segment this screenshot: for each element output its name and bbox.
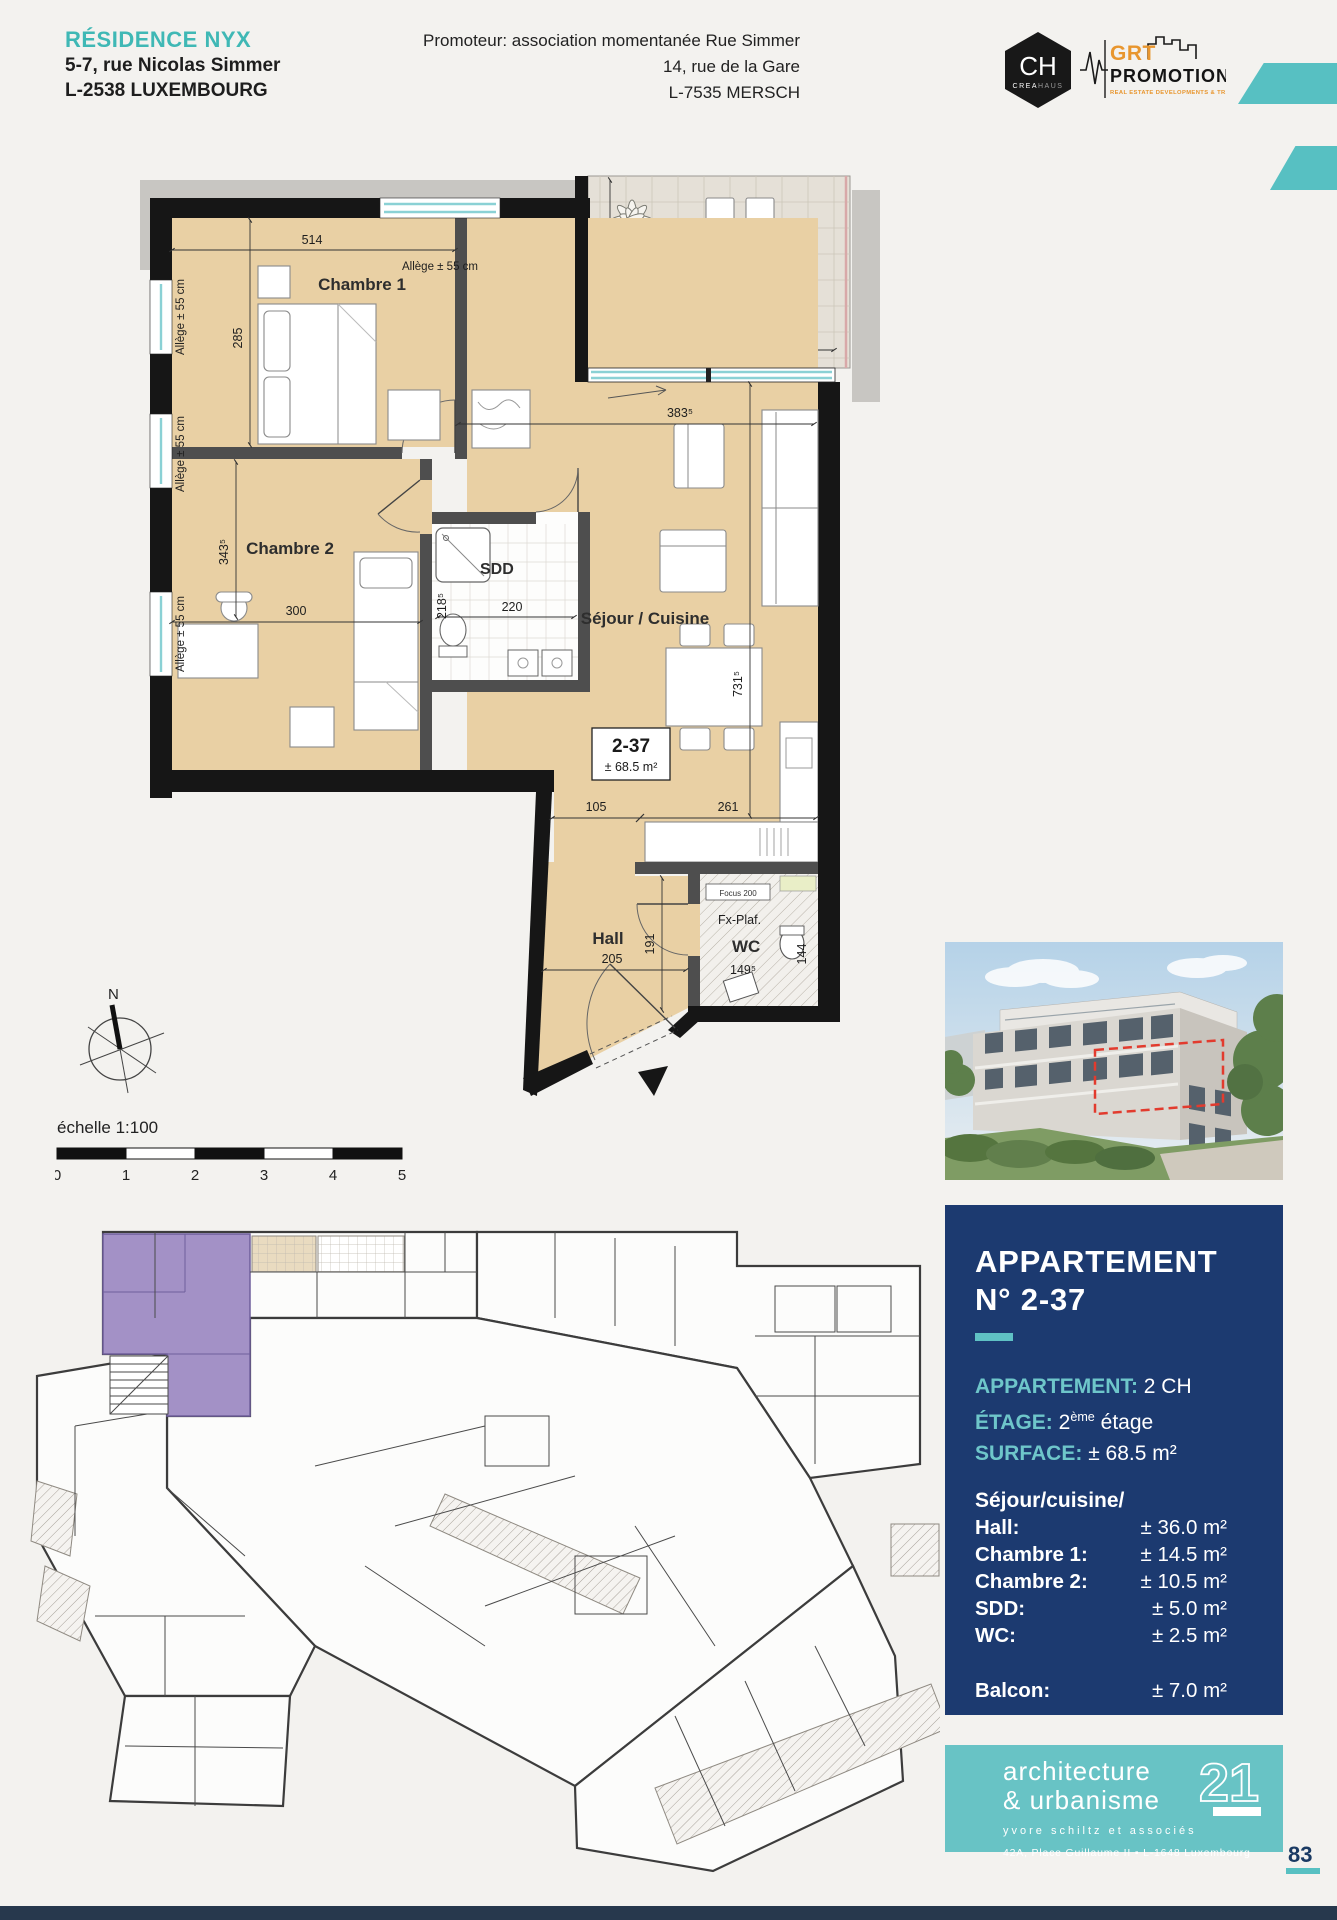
room-label-sdd: SDD [480,561,514,578]
hall-floor [532,862,688,1088]
surface-value: ± 10.5 m² [1141,1568,1227,1595]
surface-value: ± 5.0 m² [1152,1595,1227,1622]
wall-wc-bottom [688,1006,840,1022]
scale-tick-0: 0 [55,1167,61,1184]
surface-row-balcon: Balcon:± 7.0 m² [975,1677,1227,1704]
architect-address: 42A, Place Guillaume II ▪ L-1648 Luxembo… [1003,1847,1251,1859]
svg-text:CREAHAUS: CREAHAUS [1013,83,1064,90]
outer-wall-band-left [140,180,150,270]
residence-title: RÉSIDENCE NYX [65,27,280,53]
surface-value: ± 2.5 m² [1152,1622,1227,1649]
armchair [674,424,724,488]
wall-ch1-bottom [172,447,402,459]
dim-105: 105 [586,800,607,814]
residence-address-line2: L-2538 LUXEMBOURG [65,78,280,103]
dim-205: 205 [602,952,623,966]
dim-731: 731⁵ [731,671,745,697]
dim-343: 343⁵ [217,539,231,565]
left-windows [150,280,172,676]
surface-label: Balcon: [975,1677,1050,1704]
sink [508,650,538,676]
panel-title-line1: APPARTEMENT [975,1243,1217,1281]
cabinet [290,707,334,747]
spec-etage-rest: étage [1101,1411,1154,1434]
dim-218: 218⁵ [435,593,449,619]
note-allege-left3: Allège ± 55 cm [175,596,187,672]
apartment-info-panel: APPARTEMENT N° 2-37 APPARTEMENT: 2 CH ÉT… [945,1205,1283,1715]
apartment-floorplan: Balcon 197 352 SDD [140,162,880,1122]
surface-label: SDD: [975,1595,1025,1622]
creahaus-logo: CH CREAHAUS [1003,30,1073,110]
teal-decoration-top [1238,63,1337,104]
note-focus200: Focus 200 [719,889,757,898]
architect-number-text: 21 [1199,1753,1259,1813]
scale-bar: 0 1 2 3 4 5 [55,1146,407,1188]
compass-north-label: N [108,986,119,1003]
dining-table [666,648,762,726]
surface-value: ± 36.0 m² [1141,1514,1227,1541]
heartbeat-icon [1080,52,1108,84]
grt-tagline: REAL ESTATE DEVELOPMENTS & TRANSACTIONS [1110,90,1226,96]
compass-icon: N [68,985,178,1105]
dim-261: 261 [718,800,739,814]
spec-surface-label: SURFACE: [975,1442,1082,1465]
panel-title-line2: N° 2-37 [975,1281,1217,1319]
spec-appartement-label: APPARTEMENT: [975,1375,1138,1398]
spec-etage-num: 2 [1059,1411,1071,1434]
dim-220: 220 [502,600,523,614]
note-fxplaf: Fx-Plaf. [718,913,761,927]
surface-label: WC: [975,1622,1016,1649]
wall-top [150,198,590,218]
note-allege-left1: Allège ± 55 cm [175,279,187,355]
teal-decoration-bottom [1270,146,1337,190]
promoter-line1: Promoteur: association momentanée Rue Si… [390,28,800,54]
dim-285: 285 [231,328,245,349]
dining-chair [680,728,710,750]
dim-383: 383⁵ [667,406,693,420]
scale-tick-2: 2 [191,1167,199,1184]
room-label-hall: Hall [592,929,623,948]
spec-appartement-value: 2 CH [1144,1375,1192,1398]
dining-chair [724,728,754,750]
residence-address-line1: 5-7, rue Nicolas Simmer [65,53,280,78]
surface-label: Hall: [975,1514,1019,1541]
creahaus-name-part2: HAUS [1038,83,1063,90]
scale-tick-3: 3 [260,1167,268,1184]
panel-specs: APPARTEMENT: 2 CH ÉTAGE: 2ème étage SURF… [975,1371,1192,1469]
wall-balcony-left [575,176,588,382]
surface-row-wc: WC:± 2.5 m² [975,1622,1227,1649]
grt-sub: PROMOTIONS [1110,66,1226,86]
outer-wall-band-right [852,190,880,402]
surface-row-hall: Hall:± 36.0 m² [975,1514,1227,1541]
dresser [388,390,440,440]
unit-area: ± 68.5 m² [605,760,658,774]
spec-surface: SURFACE: ± 68.5 m² [975,1438,1192,1469]
wall-ch1-right [455,218,467,459]
dim-144: 144 [795,944,809,965]
grt-promotions-logo: GRT PROMOTIONS REAL ESTATE DEVELOPMENTS … [1078,32,1226,110]
surface-row-sdd: SDD:± 5.0 m² [975,1595,1227,1622]
room-label-chambre2: Chambre 2 [246,539,334,558]
surface-value: ± 14.5 m² [1141,1541,1227,1568]
scale-tick-4: 4 [329,1167,337,1184]
scale-label: échelle 1:100 [57,1118,158,1138]
scale-tick-1: 1 [122,1167,130,1184]
architect-line2: & urbanisme [1003,1785,1160,1815]
dining-chair [724,624,754,646]
armchair [660,530,726,592]
note-allege-left2: Allège ± 55 cm [175,416,187,492]
promoter-line3: L-7535 MERSCH [390,80,800,106]
scale-tick-5: 5 [398,1167,406,1184]
unit-number: 2-37 [612,736,650,757]
surface-label: Chambre 2: [975,1568,1088,1595]
dim-300: 300 [286,604,307,618]
page-bottom-strip [0,1906,1337,1920]
spec-appartement: APPARTEMENT: 2 CH [975,1371,1192,1402]
architect-bar [1213,1807,1261,1816]
project-header: RÉSIDENCE NYX 5-7, rue Nicolas Simmer L-… [65,27,280,103]
architect-number-21: 21 [1197,1751,1267,1813]
desk [178,624,258,678]
room-label-wc: WC [732,937,760,956]
brochure-page: RÉSIDENCE NYX 5-7, rue Nicolas Simmer L-… [0,0,1337,1920]
grt-name: GRT [1110,42,1156,65]
promoter-line2: 14, rue de la Gare [390,54,800,80]
architect-line1: architecture [1003,1756,1151,1786]
sink [542,650,572,676]
spec-surface-value: ± 68.5 m² [1088,1442,1177,1465]
architect-logo-box: architecture & urbanisme yvore schiltz e… [945,1745,1283,1852]
surface-row-chambre1: Chambre 1:± 14.5 m² [975,1541,1227,1568]
panel-title: APPARTEMENT N° 2-37 [975,1243,1217,1319]
outer-wall-band-top [140,180,590,198]
nightstand [258,266,290,298]
creahaus-initials: CH [1019,51,1057,81]
dim-191: 191 [643,934,657,955]
surfaces-title: Séjour/cuisine/ [975,1487,1227,1514]
wardrobe [472,390,530,448]
surface-value: ± 7.0 m² [1152,1677,1227,1704]
entry-arrow-icon [638,1066,668,1096]
spec-etage-label: ÉTAGE: [975,1411,1053,1434]
note-allege-top: Allège ± 55 cm [402,261,478,273]
dim-149: 149⁵ [730,963,756,977]
room-label-chambre1: Chambre 1 [318,275,406,294]
spec-etage: ÉTAGE: 2ème étage [975,1402,1192,1438]
promoter-block: Promoteur: association momentanée Rue Si… [390,28,800,106]
building-photo [945,942,1283,1180]
architect-subtitle: yvore schiltz et associés [1003,1825,1251,1837]
dim-514: 514 [302,233,323,247]
page-number: 83 [1288,1842,1312,1868]
creahaus-name-part1: CREA [1013,83,1038,90]
wall-right [818,382,840,1018]
building-floorplan-overview [15,1226,940,1876]
room-label-sejour: Séjour / Cuisine [581,609,709,628]
page-number-bar [1286,1868,1320,1874]
panel-surfaces: Séjour/cuisine/ Hall:± 36.0 m² Chambre 1… [975,1487,1227,1704]
surface-row-chambre2: Chambre 2:± 10.5 m² [975,1568,1227,1595]
unit-tag: 2-37 ± 68.5 m² [592,728,670,780]
surface-label: Chambre 1: [975,1541,1088,1568]
panel-accent-bar [975,1333,1013,1341]
spec-etage-sup: ème [1070,1410,1095,1424]
wall-ch2-bottom [150,770,554,792]
